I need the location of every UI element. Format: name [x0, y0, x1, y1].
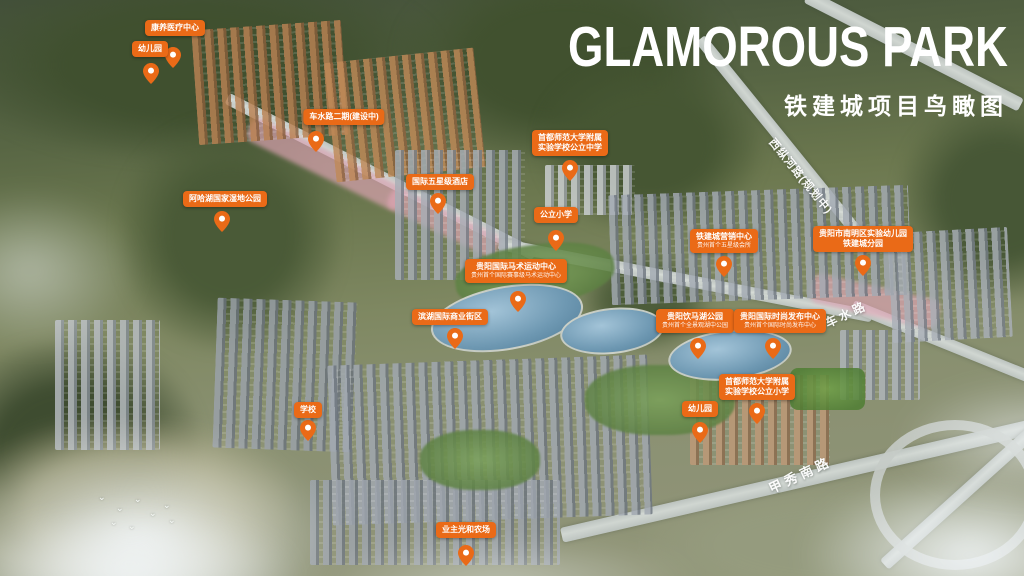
poi-label-text: 康养医疗中心 — [151, 23, 199, 33]
map-pin-icon-guiyang-intl-equestrian-sports-center — [510, 291, 526, 312]
poi-label-health-care-medical-center: 康养医疗中心 — [145, 20, 205, 36]
poi-label-text: 学校 — [300, 405, 316, 415]
poi-label-text: 贵阳饮马湖公园 — [662, 312, 728, 322]
bird-icon: ⌄ — [163, 500, 171, 511]
poi-label-tiejiancheng-marketing-center: 铁建城营销中心贵州首个五星级会所 — [690, 229, 758, 253]
map-pin-icon-international-five-star-hotel — [430, 193, 446, 214]
poi-label-text: 实验学校公立小学 — [725, 387, 789, 397]
map-pin-icon-guiyang-intl-fashion-release-center — [765, 338, 781, 359]
map-pin-icon-cheshui-road-phase-2 — [308, 131, 324, 152]
poi-label-lakeside-intl-commercial-block: 滨湖国际商业街区 — [412, 309, 488, 325]
bird-icon: ⌄ — [110, 517, 118, 528]
map-pin-icon-public-primary-school — [548, 230, 564, 251]
park-green — [420, 430, 540, 490]
poi-label-nanming-experimental-kindergarten-branch: 贵阳市南明区实验幼儿园铁建城分园 — [813, 226, 913, 252]
poi-label-text: 贵阳市南明区实验幼儿园 — [819, 229, 907, 239]
project-title-en: GLAMOROUS PARK — [568, 18, 1008, 76]
poi-label-school-southwest: 学校 — [294, 402, 322, 418]
project-title-cn: 铁建城项目鸟瞰图 — [458, 87, 1008, 121]
map-pin-icon-aha-lake-national-wetland-park — [214, 211, 230, 232]
map-pin-icon-lakeside-intl-commercial-block — [447, 328, 463, 349]
poi-label-text: 阿哈湖国家湿地公园 — [189, 194, 261, 204]
poi-label-public-primary-school: 公立小学 — [534, 207, 578, 223]
map-pin-icon-owners-sunshine-farm — [458, 545, 474, 566]
map-pin-icon-guiyang-yinma-lake-park — [690, 338, 706, 359]
poi-label-text: 实验学校公立中学 — [538, 143, 602, 153]
poi-label-international-five-star-hotel: 国际五星级酒店 — [406, 174, 474, 190]
poi-label-cheshui-road-phase-2: 车水路二期(建设中) — [303, 109, 384, 125]
map-pin-icon-cnu-affiliated-public-middle-school — [562, 160, 578, 181]
poi-label-owners-sunshine-farm: 业主光和农场 — [436, 522, 496, 538]
poi-label-text: 首都师范大学附属 — [725, 377, 789, 387]
poi-label-text: 铁建城分园 — [819, 239, 907, 249]
poi-label-cnu-affiliated-public-middle-school: 首都师范大学附属实验学校公立中学 — [532, 130, 608, 156]
map-pin-icon-tiejiancheng-marketing-center — [716, 256, 732, 277]
sports-field-green — [790, 368, 865, 410]
poi-label-kindergarten-southeast: 幼儿园 — [682, 401, 718, 417]
poi-sublabel-text: 贵州首个五星级会所 — [696, 242, 752, 250]
map-pin-icon-kindergarten-northwest — [143, 63, 159, 84]
bird-icon: ⌄ — [98, 492, 106, 503]
poi-label-text: 幼儿园 — [688, 404, 712, 414]
map-pin-icon-nanming-experimental-kindergarten-branch — [855, 255, 871, 276]
bird-icon: ⌄ — [168, 515, 176, 526]
poi-label-text: 首都师范大学附属 — [538, 133, 602, 143]
poi-label-guiyang-yinma-lake-park: 贵阳饮马湖公园贵州首个全景观湖中公园 — [656, 309, 734, 333]
poi-label-text: 公立小学 — [540, 210, 572, 220]
poi-label-cnu-affiliated-public-primary-school: 首都师范大学附属实验学校公立小学 — [719, 374, 795, 400]
bird-icon: ⌄ — [134, 494, 142, 505]
poi-label-kindergarten-northwest: 幼儿园 — [132, 41, 168, 57]
map-pin-icon-school-southwest — [300, 420, 316, 441]
poi-label-text: 贵阳国际马术运动中心 — [471, 262, 561, 272]
poi-sublabel-text: 贵州首个全景观湖中公园 — [662, 322, 728, 330]
map-pin-icon-kindergarten-southeast — [692, 422, 708, 443]
poi-label-text: 贵阳国际时尚发布中心 — [740, 312, 820, 322]
poi-label-guiyang-intl-fashion-release-center: 贵阳国际时尚发布中心贵州首个国际时尚发布中心 — [734, 309, 826, 333]
title-block: GLAMOROUS PARK 铁建城项目鸟瞰图 — [458, 18, 1008, 121]
poi-label-guiyang-intl-equestrian-sports-center: 贵阳国际马术运动中心贵州首个国际赛事级马术运动中心 — [465, 259, 567, 283]
poi-label-text: 幼儿园 — [138, 44, 162, 54]
poi-label-text: 国际五星级酒店 — [412, 177, 468, 187]
poi-label-text: 车水路二期(建设中) — [309, 112, 378, 122]
map-pin-icon-cnu-affiliated-public-primary-school — [749, 403, 765, 424]
bird-icon: ⌄ — [116, 503, 124, 514]
poi-label-aha-lake-national-wetland-park: 阿哈湖国家湿地公园 — [183, 191, 267, 207]
poi-label-text: 业主光和农场 — [442, 525, 490, 535]
poi-sublabel-text: 贵州首个国际时尚发布中心 — [740, 322, 820, 330]
bird-icon: ⌄ — [149, 508, 157, 519]
aerial-masterplan-render: ⌄ ⌄ ⌄ ⌄ ⌄ ⌄ ⌄ ⌄ GLAMOROUS PARK 铁建城项目鸟瞰图 … — [0, 0, 1024, 576]
poi-label-text: 铁建城营销中心 — [696, 232, 752, 242]
poi-label-text: 滨湖国际商业街区 — [418, 312, 482, 322]
bird-icon: ⌄ — [128, 521, 136, 532]
poi-sublabel-text: 贵州首个国际赛事级马术运动中心 — [471, 272, 561, 280]
